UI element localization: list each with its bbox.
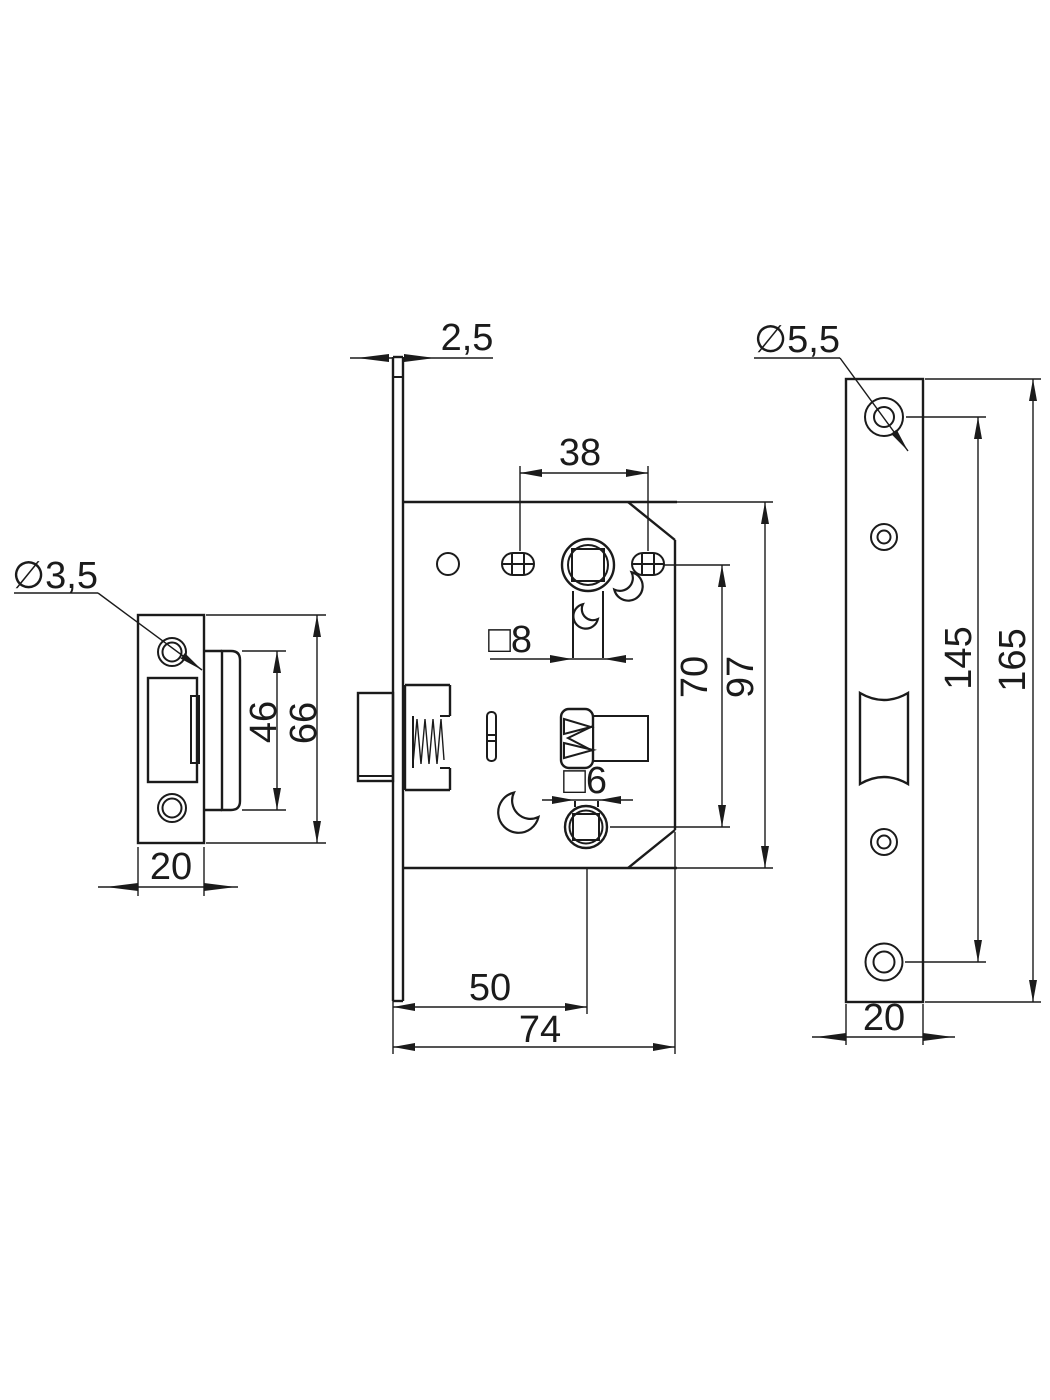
strike-plate-screw-hole-bottom xyxy=(158,794,186,822)
faceplate-width-label: 20 xyxy=(863,997,905,1039)
case-pin-hole xyxy=(437,553,459,575)
faceplate-thickness-label: 2,5 xyxy=(441,317,494,359)
strike-plate-screw-hole-top xyxy=(158,638,186,666)
strike-plate-outline xyxy=(138,615,240,843)
faceplate-latch-cutout xyxy=(860,693,908,784)
follower-square-label: □6 xyxy=(563,760,607,802)
faceplate-dimension-lines xyxy=(754,358,1041,1045)
case-screw-post-left xyxy=(502,553,534,575)
case-screw-post-right xyxy=(632,553,664,575)
lock-body-view: 2,5 38 □8 □6 50 74 70 97 xyxy=(350,317,773,1054)
strike-hole-diameter-label: ∅3,5 xyxy=(12,555,98,597)
strike-plate-view: ∅3,5 46 66 20 xyxy=(12,555,326,896)
cam-crescent-right xyxy=(613,571,649,607)
screw-spacing-label: 145 xyxy=(938,626,980,689)
case-height-label: 97 xyxy=(720,656,762,698)
faceplate-outline xyxy=(846,379,923,1002)
cam-crescent-lower xyxy=(490,790,541,841)
strike-cutout-height-label: 46 xyxy=(243,701,285,743)
faceplate-screw-hole-bottom xyxy=(866,944,903,981)
faceplate-pin-hole-lower xyxy=(871,829,897,855)
case-depth-label: 74 xyxy=(519,1009,561,1051)
latch-spring xyxy=(413,719,444,764)
faceplate-length-label: 165 xyxy=(992,628,1034,691)
spindle-square-label: □8 xyxy=(488,619,532,661)
strike-plate-latch-opening xyxy=(148,678,199,782)
slide-pin xyxy=(487,712,496,761)
spindle-hub-lower xyxy=(565,801,607,848)
hole-spacing-label: 38 xyxy=(559,432,601,474)
faceplate-view: ∅5,5 145 165 20 xyxy=(754,319,1041,1045)
technical-drawing-page: ∅3,5 46 66 20 xyxy=(0,0,1050,1400)
strike-plate-height-label: 66 xyxy=(283,702,325,744)
latch-bolt-assembly xyxy=(358,685,450,790)
strike-plate-width-label: 20 xyxy=(150,846,192,888)
spindle-hub-upper xyxy=(562,539,614,658)
faceplate-pin-hole-upper xyxy=(871,524,897,550)
backset-label: 50 xyxy=(469,967,511,1009)
hub-distance-label: 70 xyxy=(674,656,716,698)
lock-drawing: ∅3,5 46 66 20 xyxy=(0,0,1050,1400)
faceplate-hole-diameter-label: ∅5,5 xyxy=(754,319,840,361)
lock-faceplate-edge xyxy=(393,357,403,1001)
